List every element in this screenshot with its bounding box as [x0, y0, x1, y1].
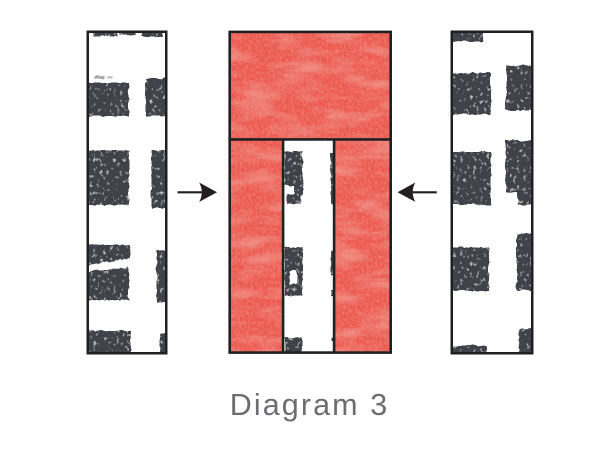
svg-text:Diagram 3: Diagram 3 — [230, 388, 390, 422]
